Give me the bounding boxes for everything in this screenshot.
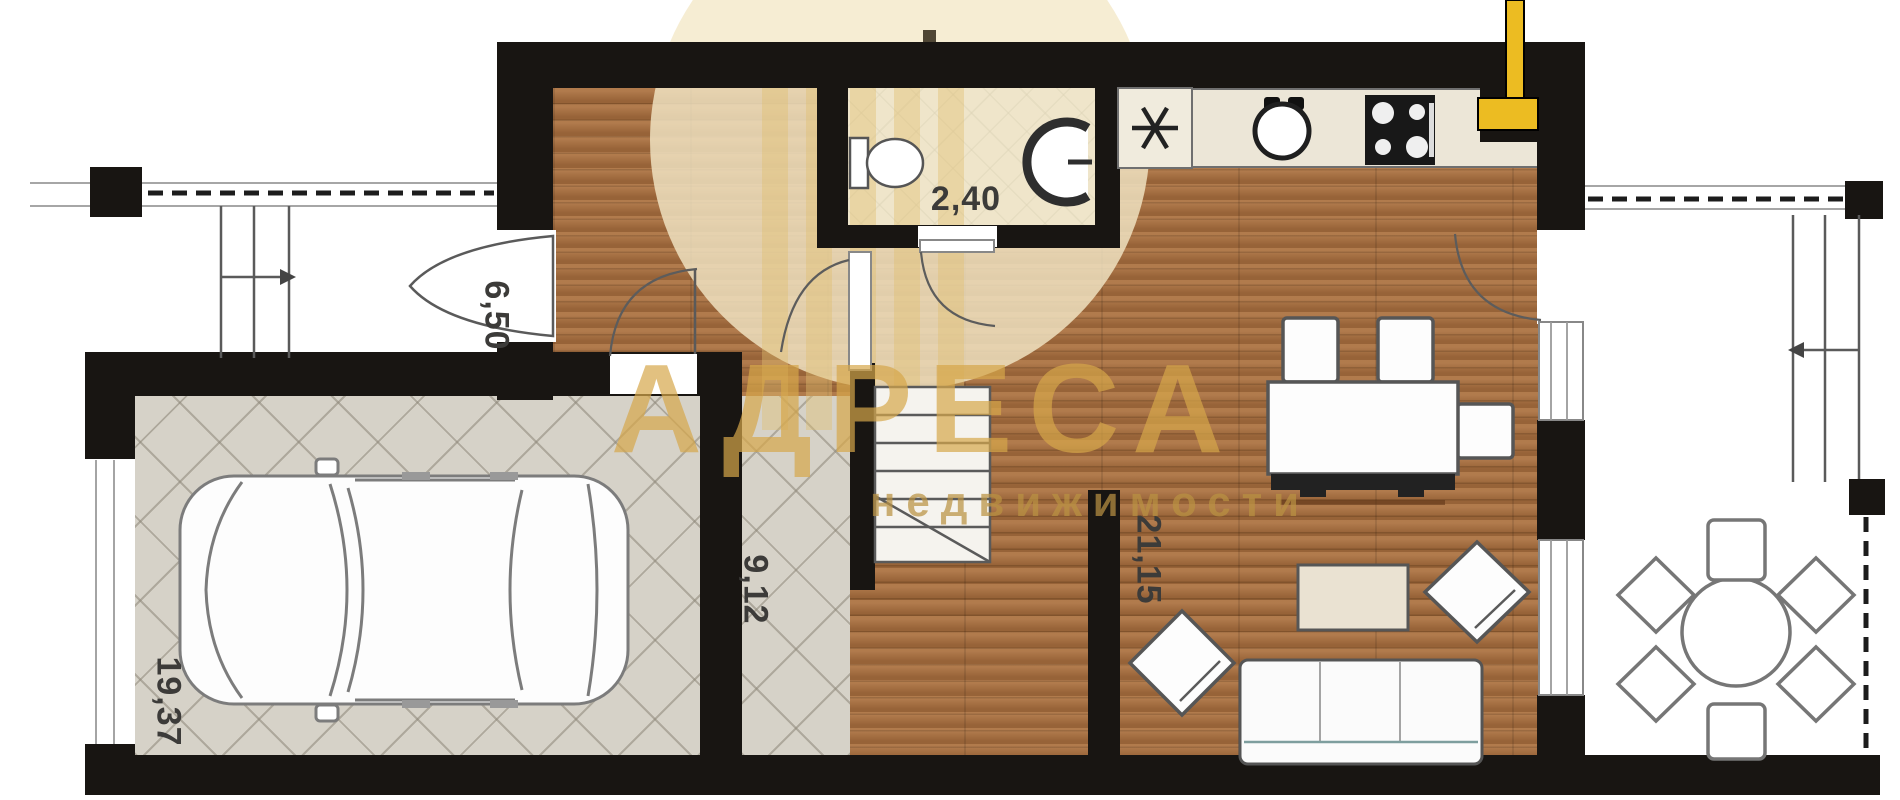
living-room-furniture	[1130, 542, 1529, 764]
floor-plan: 6,50 2,40 9,12 21,15 19,37 АДРЕСА недвиж…	[0, 0, 1900, 800]
car	[180, 459, 628, 721]
room-area-stair-hall: 9,12	[736, 515, 775, 665]
stove-icon	[1365, 95, 1435, 165]
terrace-chair	[1708, 520, 1765, 580]
window	[1539, 322, 1583, 420]
garage-door	[85, 448, 135, 755]
terrace-chair	[1708, 704, 1765, 759]
terrace-dining-set	[1618, 520, 1854, 759]
room-area-garage: 19,37	[149, 627, 188, 777]
fence	[1788, 215, 1859, 482]
room-area-wc: 2,40	[891, 180, 1041, 219]
round-table	[1682, 578, 1790, 686]
left-property-line	[30, 167, 497, 358]
watermark-subtitle: недвижимости	[840, 478, 1340, 526]
sink-icon	[1255, 97, 1309, 158]
armchair	[1425, 542, 1529, 642]
terrace-chair	[1618, 647, 1694, 721]
watermark-brand: АДРЕСА	[495, 336, 1355, 481]
gate	[221, 206, 296, 358]
dining-chair	[1457, 404, 1513, 458]
terrace-chair	[1778, 647, 1854, 721]
coffee-table	[1298, 565, 1408, 630]
window	[1539, 540, 1583, 695]
dining-chair	[1378, 318, 1433, 382]
sofa	[1240, 660, 1482, 764]
